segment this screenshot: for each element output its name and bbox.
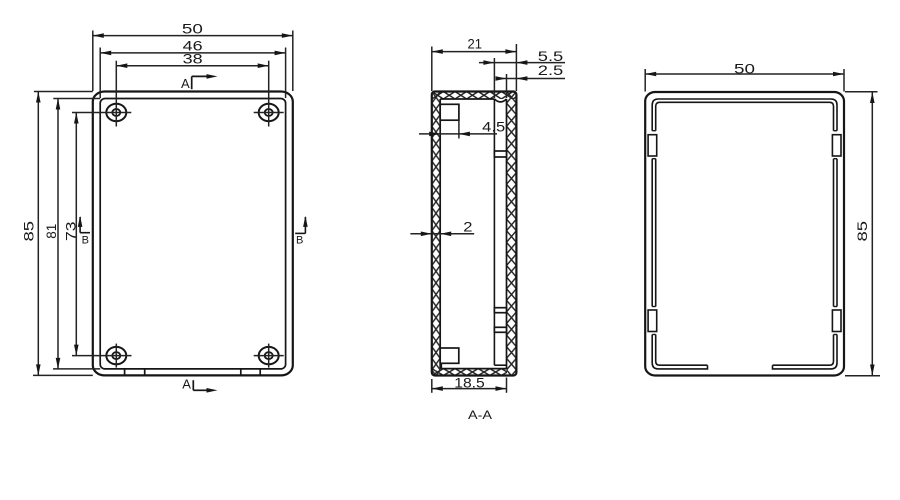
svg-text:85: 85 <box>854 221 870 242</box>
svg-text:81: 81 <box>43 223 59 238</box>
svg-text:A: A <box>182 377 191 392</box>
svg-text:50: 50 <box>182 21 203 37</box>
svg-text:50: 50 <box>734 61 755 77</box>
svg-text:2.5: 2.5 <box>538 62 564 78</box>
svg-text:2: 2 <box>463 219 472 235</box>
svg-text:18.5: 18.5 <box>454 374 485 390</box>
svg-text:85: 85 <box>21 221 37 242</box>
svg-text:38: 38 <box>183 50 203 66</box>
svg-text:B: B <box>82 234 89 246</box>
svg-text:A: A <box>181 76 190 91</box>
svg-text:4.5: 4.5 <box>482 118 505 134</box>
svg-text:21: 21 <box>468 36 483 52</box>
svg-text:A-A: A-A <box>468 408 492 422</box>
svg-text:B: B <box>296 235 303 247</box>
svg-text:73: 73 <box>62 221 78 241</box>
